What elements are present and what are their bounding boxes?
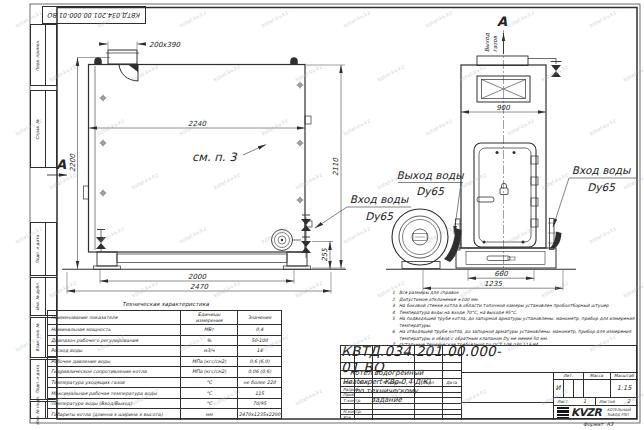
note-number: 5 <box>388 316 399 329</box>
title-block-header-cell: Подп <box>414 380 442 385</box>
margin-label-text: Инв. № дубл. <box>35 282 40 311</box>
gas-outlet-label-2: газов <box>492 35 498 52</box>
tech-table-row: Габариты котла (длинна х ширина х высота… <box>48 409 281 420</box>
staff-row-label: Пров. <box>343 392 355 397</box>
tech-cell-name: Температура воды (Вход/Выход) <box>48 399 181 409</box>
sheets-value: 2 <box>627 398 630 404</box>
tech-cell-units: °С <box>181 388 238 398</box>
tech-table-row: Температура уходящих газов°Сне более 220 <box>48 378 281 389</box>
tech-cell-value: 70/95 <box>238 399 281 409</box>
tech-table-row: Температура воды (Вход/Выход)°С70/95 <box>48 399 281 410</box>
tech-cell-value: 115 <box>238 388 281 398</box>
note-item: 6На отводящей трубе котла, до запорной а… <box>388 329 637 342</box>
side-inlet-water-dy: Dy65 <box>587 181 616 194</box>
top-stamp-text: КВТД.034.201.00.000-01 ВО <box>48 11 141 19</box>
title-block-header-cell: Лист <box>354 380 372 385</box>
margin-box-label: Инв. № подл. <box>31 402 45 418</box>
tech-cell-value: 14 <box>238 346 281 356</box>
tech-cell-name: Габариты котла (длинна х ширина х высота… <box>48 409 181 420</box>
margin-box-divider <box>45 223 46 275</box>
front-section-mark: А <box>56 157 66 172</box>
margin-box: Перв. примен. <box>30 24 57 86</box>
front-inlet-water-label: Вход воды <box>350 193 409 205</box>
drawing-sheet: 200x390 2240 2200 2110 255 2000 2470 см.… <box>0 0 644 430</box>
margin-label-text: Справ. № <box>35 119 40 139</box>
tech-table-row: Расход водым3/ч14 <box>48 346 281 357</box>
staff-row-label: Утв. <box>343 415 352 420</box>
side-dims <box>423 112 563 288</box>
front-dim-lines <box>67 42 345 294</box>
tech-cell-value: 50-100 <box>238 336 281 346</box>
margin-box-label: Подп. и дата <box>31 223 45 275</box>
margin-box-divider <box>45 278 46 315</box>
tech-cell-name: Гидравлическое сопротивление котла <box>48 367 181 377</box>
dim-255-label: 255 <box>321 248 329 262</box>
margin-box-divider <box>45 91 46 167</box>
sheets-label: Листов <box>599 399 615 404</box>
tech-cell-units: °С <box>181 378 238 388</box>
front-inlet-water-dy: Dy65 <box>365 210 394 223</box>
margin-box-label: Перв. примен. <box>31 25 45 85</box>
top-stamp: КВТД.034.201.00.000-01 ВО <box>42 6 146 24</box>
side-view <box>386 30 636 291</box>
company-name-line1: КОТЕЛЬНЫЙ <box>607 408 631 413</box>
staff-row-label: Разраб. <box>343 387 359 392</box>
see-note-label: см. п. 3 <box>192 150 238 164</box>
dim-660-label: 660 <box>494 270 508 278</box>
mass-label: Масса <box>583 373 610 378</box>
tech-table-row: Номинальная мощностьМВт0,4 <box>48 325 281 336</box>
dim-2200-label: 2200 <box>69 154 77 172</box>
margin-box-divider <box>45 360 46 399</box>
margin-box-divider <box>45 25 46 85</box>
margin-box-label: Взам. инв. № <box>31 318 45 357</box>
tech-table-row: Гидравлическое сопротивление котлаМПа (к… <box>48 367 281 378</box>
tech-cell-units: °С <box>181 399 238 409</box>
tech-cell-units: % <box>181 336 238 346</box>
tech-cell-name: Расход воды <box>48 346 181 356</box>
scale-label: Масштаб <box>610 373 638 378</box>
margin-box-label: Справ. № <box>31 91 45 167</box>
tech-table-row: Рабочее давление водыМПа (кгс/см2)0,6 (6… <box>48 357 281 368</box>
margin-box-label: Инв. № дубл. <box>31 278 45 315</box>
margin-box-divider <box>45 402 46 418</box>
dim-2470-label: 2470 <box>190 283 208 291</box>
margin-label-text: Инв. № подл. <box>35 396 40 425</box>
dim-900-label: 900 <box>496 104 510 112</box>
front-view <box>47 42 411 294</box>
gas-outlet-label-1: Выход <box>484 33 490 52</box>
tech-table-header-name: Наименование показателя <box>48 311 181 324</box>
note-item: 5На подводящей трубе котла, до запорной … <box>388 316 637 329</box>
dim-2110-label: 2110 <box>332 158 340 176</box>
company-name: КОТЕЛЬНЫЙ ЗАВОД РЭП <box>607 408 631 417</box>
company-name-line2: ЗАВОД РЭП <box>607 413 631 418</box>
margin-box-label: Подп. и дата <box>31 360 45 399</box>
outlet-water-label: Выход воды <box>397 169 465 181</box>
tech-cell-value: 2470х1235х2200 <box>238 409 281 420</box>
tech-cell-units: МПа (кгс/см2) <box>181 357 238 367</box>
scale-value: 1:15 <box>610 384 638 392</box>
tech-cell-units: м3/ч <box>181 346 238 356</box>
margin-label-text: Перв. примен. <box>35 39 40 70</box>
margin-box: Справ. № <box>30 90 57 168</box>
dim-2240-label: 2240 <box>188 120 206 128</box>
note-text: На подводящей трубе котла, до запорной а… <box>399 316 637 329</box>
dim-2000-label: 2000 <box>188 273 206 281</box>
kvzr-logo-text: KVZR <box>571 406 601 418</box>
side-inlet-water-label: Вход воды <box>572 164 631 176</box>
margin-label-text: Подп. и дата <box>35 365 40 394</box>
dim-1235-label: 1235 <box>484 280 502 288</box>
notes-list: 1Все размеры для справок2Допустимое откл… <box>388 290 637 349</box>
tech-table-header-value: Значение <box>238 311 281 324</box>
tech-cell-units: МВт <box>181 325 238 335</box>
title-block-header-cell: Изм <box>341 380 354 385</box>
margin-box-divider <box>45 318 46 357</box>
tech-cell-name: Температура уходящих газов <box>48 378 181 388</box>
side-section-mark: А <box>497 14 507 29</box>
lit-value: И <box>553 384 563 392</box>
margin-label-text: Подп. и дата <box>35 235 40 264</box>
tech-cell-name: Максимальная рабочая температура воды <box>48 388 181 398</box>
tech-table-title: Техническая характеристика <box>88 301 243 307</box>
tech-table-header-units: Единицы измерения <box>181 311 238 324</box>
margin-box: Подп. и дата <box>30 222 57 276</box>
margin-label-text: Взам. инв. № <box>35 323 40 351</box>
note-number: 6 <box>388 329 399 342</box>
format-note: Формат А3 <box>583 421 613 427</box>
kvzr-logo-icon <box>557 407 569 418</box>
title-block-header-cell: N докум. <box>372 380 414 385</box>
tech-cell-name: Номинальная мощность <box>48 325 181 335</box>
staff-row-label: Н.контр. <box>343 409 362 414</box>
note-text: На отводящей трубе котла, до запорной ар… <box>399 329 637 342</box>
sheet-value: 1 <box>583 398 586 404</box>
tech-cell-value: не более 220 <box>238 378 281 388</box>
outlet-water-dy: Dy65 <box>416 185 445 198</box>
tech-table-header-units-text: Единицы измерения <box>191 312 227 322</box>
tech-table-row: Диапазон рабочего регулирования%50-100 <box>48 336 281 347</box>
format-label: Формат <box>583 421 603 427</box>
staff-row-label: Т.контр. <box>343 398 361 403</box>
tech-cell-units: МПа (кгс/см2) <box>181 367 238 377</box>
tech-cell-value: 0,6 (6,0) <box>238 357 281 367</box>
tech-cell-value: 0,06 (0,6) <box>238 367 281 377</box>
dim-stub-label: 200x390 <box>149 41 180 49</box>
lit-label: Лит. <box>553 373 583 378</box>
title-block-header-cell: Дата <box>442 380 461 385</box>
position-markers <box>100 82 304 204</box>
tech-table: Наименование показателяЕдиницы измерения… <box>47 310 282 419</box>
tech-cell-units: мм <box>181 409 238 420</box>
tech-cell-value: 0,4 <box>238 325 281 335</box>
tech-cell-name: Диапазон рабочего регулирования <box>48 336 181 346</box>
tech-cell-name: Рабочее давление воды <box>48 357 181 367</box>
title-block: КВТД.034.201.00.000-01 ВО Котел водогрей… <box>340 345 637 419</box>
format-value: А3 <box>606 421 613 427</box>
sheet-label: Лист <box>557 399 568 404</box>
tech-table-row: Максимальная рабочая температура воды°С1… <box>48 388 281 399</box>
tech-table-header-row: Наименование показателяЕдиницы измерения… <box>48 311 281 325</box>
